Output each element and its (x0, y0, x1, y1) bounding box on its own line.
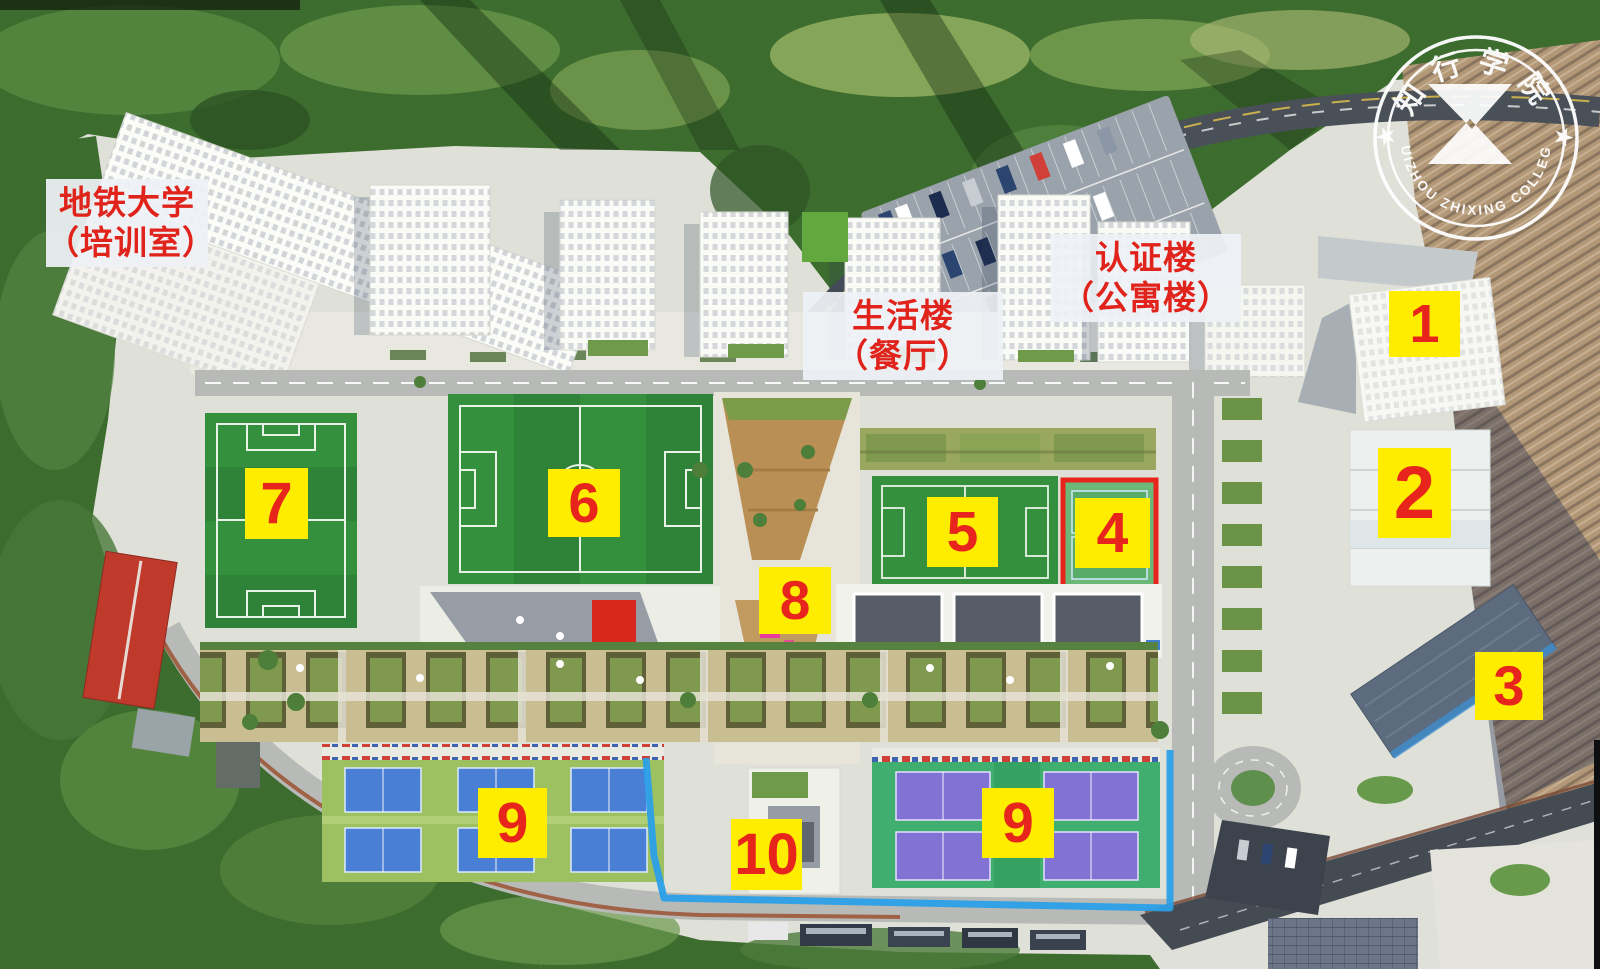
label-life-building-line2: （餐厅） (803, 336, 1003, 376)
label-metro-university-line2: （培训室） (46, 223, 208, 263)
marker-4: 4 (1075, 498, 1150, 568)
label-metro-university: 地铁大学（培训室） (46, 179, 208, 267)
marker-8: 8 (759, 567, 831, 634)
garden-terraces (200, 642, 1158, 742)
label-certification-building: 认证楼（公寓楼） (1051, 234, 1241, 322)
label-life-building: 生活楼（餐厅） (803, 292, 1003, 380)
marker-2: 2 (1378, 448, 1451, 538)
z-monogram-icon (1428, 84, 1512, 164)
marker-5: 5 (927, 497, 998, 567)
solar-roof-building (1268, 918, 1418, 969)
seal-star-right-icon: ★ (1550, 122, 1578, 153)
marker-9-west: 9 (478, 788, 547, 858)
label-certification-building-line1: 认证楼 (1051, 238, 1241, 278)
marker-10: 10 (731, 819, 802, 890)
rooftop-garden-north (856, 428, 1156, 470)
marker-1: 1 (1389, 291, 1460, 357)
seal-college-name-en: HUIZHOU ZHIXING COLLEGE (1352, 14, 1554, 218)
southeast-building (1430, 840, 1600, 969)
gym-deck (420, 586, 720, 648)
roundabout (1205, 746, 1301, 830)
marker-7: 7 (245, 468, 308, 539)
label-certification-building-line2: （公寓楼） (1051, 278, 1241, 318)
college-seal-logo: ★ ★ 知行学院 HUIZHOU ZHIXING COLLEGE (1352, 14, 1600, 264)
label-life-building-line1: 生活楼 (803, 296, 1003, 336)
campus-map: ★ ★ 知行学院 HUIZHOU ZHIXING COLLEGE 地铁大学（培训… (0, 0, 1600, 969)
marker-3: 3 (1475, 652, 1543, 720)
marker-6: 6 (548, 469, 620, 537)
label-metro-university-line1: 地铁大学 (46, 183, 208, 223)
marker-9-east: 9 (982, 788, 1054, 858)
southeast-parking (1205, 820, 1330, 915)
